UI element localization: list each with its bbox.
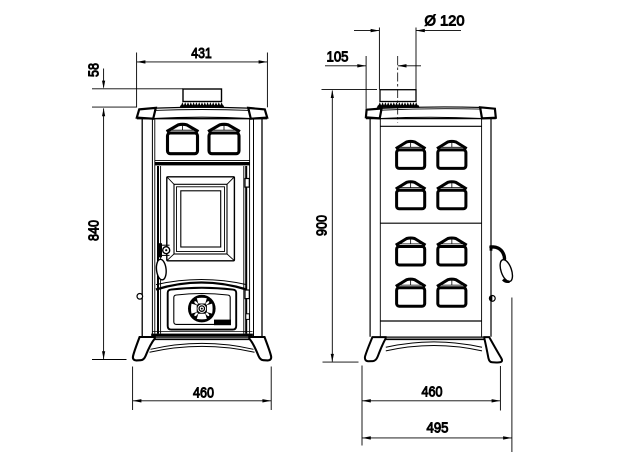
svg-text:495: 495 [427, 420, 449, 437]
svg-text:840: 840 [86, 220, 103, 241]
svg-text:Ø 120: Ø 120 [425, 13, 465, 30]
svg-text:460: 460 [422, 384, 443, 401]
svg-text:900: 900 [314, 215, 331, 236]
svg-text:431: 431 [191, 45, 212, 62]
svg-text:58: 58 [86, 63, 103, 77]
svg-text:105: 105 [327, 49, 349, 66]
svg-text:460: 460 [193, 385, 214, 402]
